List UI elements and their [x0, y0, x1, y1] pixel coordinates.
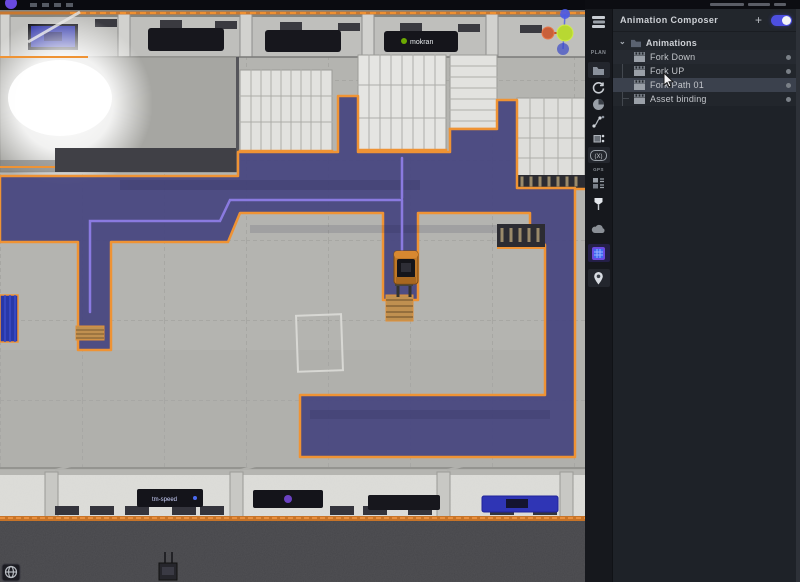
- item-state-dot[interactable]: [786, 97, 791, 102]
- pallet: [76, 326, 104, 340]
- vertical-toolbar: PLAN (X): [585, 9, 613, 582]
- globe-button[interactable]: [2, 564, 20, 581]
- item-label: Fork Path 01: [650, 80, 704, 90]
- refresh-icon[interactable]: [588, 79, 610, 95]
- cloud-icon[interactable]: [588, 221, 610, 237]
- viewport-3d[interactable]: mokran: [0, 0, 585, 582]
- item-state-dot[interactable]: [786, 69, 791, 74]
- pin-lamp-icon[interactable]: [588, 196, 610, 212]
- animation-tree: ⌄ Animations Fork Down Fork UP: [613, 32, 800, 106]
- dock-banner-brand: tm-speed: [137, 489, 203, 507]
- menu-strip-remnant: [585, 0, 800, 9]
- rack-d: [517, 98, 585, 189]
- asphalt-yard: [0, 521, 585, 582]
- panel-header: Animation Composer +: [613, 9, 800, 32]
- navmesh-tool-icon[interactable]: [588, 244, 610, 262]
- path-nodes-icon[interactable]: [588, 113, 610, 129]
- dock-banner-blue: [482, 496, 558, 512]
- item-label: Asset binding: [650, 94, 707, 104]
- application-window: mokran: [0, 0, 800, 582]
- clapperboard-icon: [634, 94, 645, 104]
- wall-banner: [148, 28, 224, 51]
- svg-text:tm-speed: tm-speed: [152, 497, 177, 503]
- svg-text:mokran: mokran: [410, 39, 433, 46]
- gps-label: GPS: [588, 164, 610, 174]
- right-side-region: PLAN (X): [585, 0, 800, 582]
- chevron-down-icon[interactable]: ⌄: [619, 38, 626, 46]
- add-animation-button[interactable]: +: [755, 14, 762, 26]
- layers-stack-icon[interactable]: [588, 14, 610, 30]
- rack-c: [450, 55, 497, 130]
- folder-icon[interactable]: [588, 62, 610, 78]
- location-marker-icon[interactable]: [588, 269, 610, 287]
- gizmo-z-handle[interactable]: [560, 9, 570, 19]
- mezzanine-edge-shadow: [55, 148, 238, 172]
- xf-badge-icon[interactable]: (X): [588, 147, 610, 163]
- animation-composer-panel: Animation Composer + ⌄ Animations Fork D: [613, 9, 800, 582]
- group-label: Animations: [646, 38, 697, 48]
- vertex-edit-icon[interactable]: [588, 130, 610, 146]
- tree-group-animations[interactable]: ⌄ Animations: [613, 36, 800, 50]
- svg-text:(X): (X): [595, 153, 603, 159]
- animation-item-fork-down[interactable]: Fork Down: [613, 50, 800, 64]
- animation-item-fork-path-01[interactable]: Fork Path 01: [613, 78, 800, 92]
- animation-item-asset-binding[interactable]: Asset binding: [613, 92, 800, 106]
- folder-icon: [630, 38, 642, 48]
- blue-mat: [0, 295, 18, 342]
- clapperboard-icon: [634, 66, 645, 76]
- animation-item-fork-up[interactable]: Fork UP: [613, 64, 800, 78]
- plan-label: PLAN: [588, 45, 610, 61]
- wall-banner: [265, 30, 341, 52]
- viewport-top-strip: [0, 0, 585, 10]
- panel-enable-toggle[interactable]: [771, 15, 792, 26]
- dock-banner: [253, 490, 323, 508]
- panel-empty-area: [613, 106, 800, 582]
- mouse-cursor: [663, 73, 674, 88]
- panel-scrollbar[interactable]: [796, 9, 800, 582]
- clapperboard-icon: [634, 80, 645, 90]
- wall-banner-brand: mokran: [384, 31, 458, 52]
- dock-wall: tm-speed: [0, 461, 585, 521]
- dock-banner: [368, 495, 440, 510]
- rack-b: [358, 55, 446, 151]
- gizmo-center-handle[interactable]: [557, 25, 573, 41]
- item-state-dot[interactable]: [786, 83, 791, 88]
- gizmo-z-neg-handle[interactable]: [557, 43, 569, 55]
- pallet-band: [497, 224, 545, 248]
- clapperboard-icon: [634, 52, 645, 62]
- rack-a: [240, 70, 332, 152]
- panel-title: Animation Composer: [620, 15, 755, 25]
- gizmo-x-handle[interactable]: [542, 27, 554, 39]
- item-label: Fork Down: [650, 52, 695, 62]
- item-state-dot[interactable]: [786, 55, 791, 60]
- pie-chart-icon[interactable]: [588, 96, 610, 112]
- crates-icon[interactable]: [588, 175, 610, 191]
- pallet-stack: [386, 295, 413, 321]
